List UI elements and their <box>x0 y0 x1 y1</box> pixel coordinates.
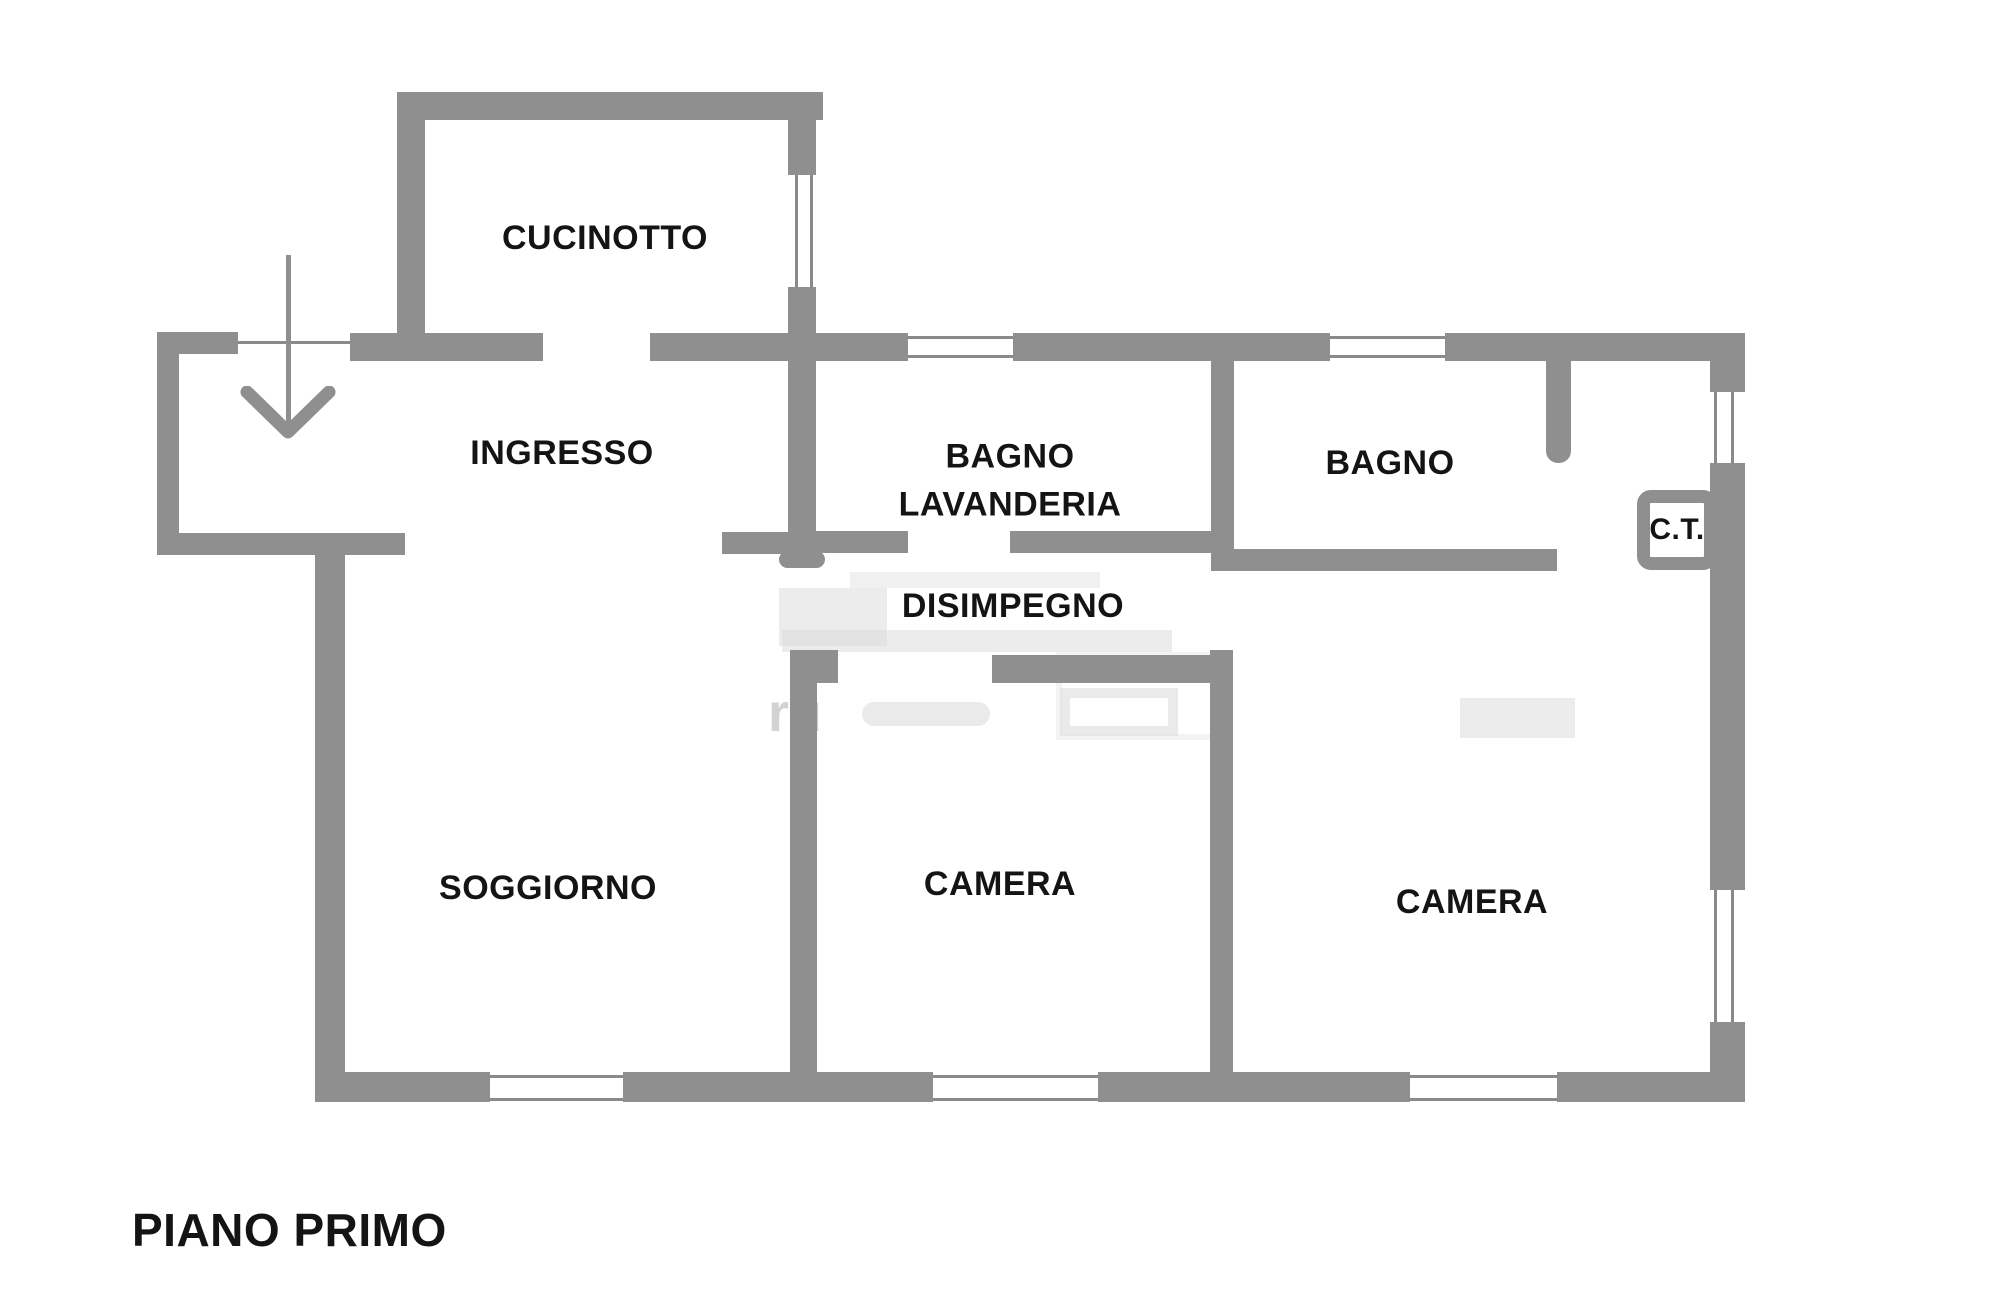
wall-porch-bottom <box>157 533 405 555</box>
wall-between-cameras <box>1210 650 1233 1072</box>
window-right-lower <box>1714 890 1734 1022</box>
wall-ingresso-stub <box>722 532 790 554</box>
room-label-cucinotto: CUCINOTTO <box>502 214 708 262</box>
wall-camera1-top-right <box>992 655 1223 683</box>
room-label-ct: C.T. <box>1649 513 1704 547</box>
watermark-blob <box>782 630 1172 652</box>
wall-lavanderia-bottom-left <box>790 531 908 553</box>
wall-cucinotto-left <box>397 92 425 360</box>
wall-bottom-a <box>315 1072 490 1102</box>
wall-bagno-partial <box>1546 361 1571 463</box>
room-label-disimpegno: DISIMPEGNO <box>902 582 1124 630</box>
room-label-bagno: BAGNO <box>1325 439 1454 487</box>
wall-ingresso-top <box>350 333 543 361</box>
wall-bottom-c <box>1098 1072 1410 1102</box>
entrance-arrow-icon <box>238 386 338 444</box>
wall-top-middle-a <box>650 333 908 361</box>
window-cucinotto-right <box>795 175 813 287</box>
door-leaf-disimpegno <box>779 551 825 568</box>
watermark-blob <box>862 702 990 726</box>
wall-porch-left <box>157 332 179 555</box>
page-title: PIANO PRIMO <box>132 1203 447 1257</box>
window-camera2-bottom <box>1410 1075 1557 1101</box>
wall-bagno-bottom <box>1234 549 1557 571</box>
room-label-ingresso: INGRESSO <box>470 429 653 477</box>
wall-top-right <box>1445 333 1710 361</box>
wall-camera1-left <box>790 650 817 1072</box>
wall-right-top-corner <box>1710 333 1745 392</box>
wall-bagno-left <box>1211 361 1234 571</box>
window-soggiorno-bottom <box>490 1075 623 1101</box>
wall-lavanderia-bottom-right <box>1010 531 1211 553</box>
window-lavanderia-top <box>908 336 1013 358</box>
room-label-camera-2: CAMERA <box>1396 878 1548 926</box>
wall-camera1-top-left <box>790 650 838 683</box>
window-right-upper <box>1714 392 1734 463</box>
ct-box: C.T. <box>1637 490 1717 570</box>
room-label-bagno-lavanderia: BAGNO LAVANDERIA <box>899 433 1122 530</box>
room-label-camera-1: CAMERA <box>924 860 1076 908</box>
wall-cucinotto-top <box>397 92 823 120</box>
window-bagno-top <box>1330 336 1445 358</box>
entrance-door-line <box>238 341 350 344</box>
wall-cucinotto-right-upper <box>788 118 816 175</box>
watermark-blob <box>1460 698 1575 738</box>
window-camera1-bottom <box>933 1075 1098 1101</box>
wall-soggiorno-left <box>315 533 345 1102</box>
wall-top-middle-b <box>1013 333 1330 361</box>
wall-right-bottom-corner <box>1710 1022 1745 1102</box>
wall-bottom-b <box>623 1072 933 1102</box>
room-label-soggiorno: SOGGIORNO <box>439 864 657 912</box>
floor-plan: ru C.T. <box>0 0 2000 1309</box>
wall-cucinotto-right-lower <box>788 287 816 553</box>
